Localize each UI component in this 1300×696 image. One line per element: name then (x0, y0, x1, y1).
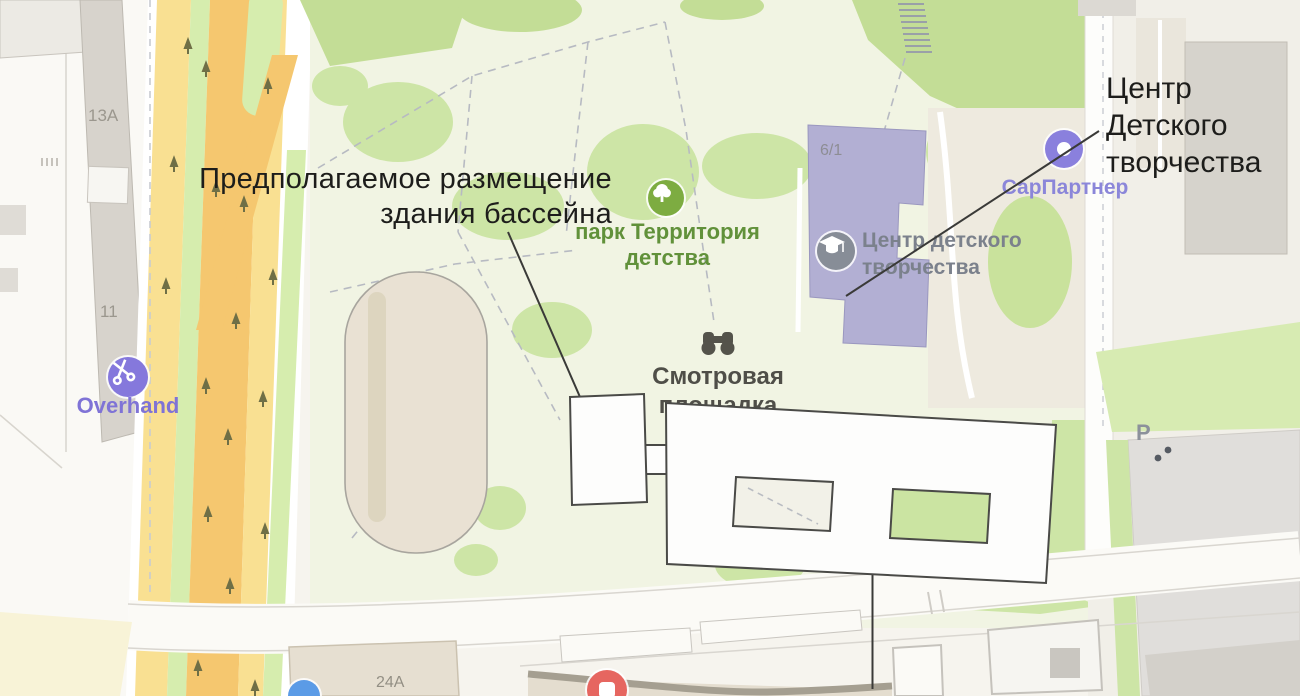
pool-small-block (570, 394, 647, 505)
pool-courtyard-left (733, 477, 833, 531)
pool-annotation-line2: здания бассейна (130, 197, 612, 232)
pool-courtyard-right (890, 489, 990, 543)
cdt-leader-line (846, 131, 1099, 296)
cdt-annotation-line2: Детского (1106, 107, 1261, 144)
proposed-pool-buildings (570, 394, 1056, 583)
cdt-annotation-line1: Центр (1106, 70, 1261, 107)
pool-main-block (666, 403, 1056, 583)
pool-annotation-line1: Предполагаемое размещение (130, 162, 612, 197)
proposal-overlay (0, 0, 1300, 696)
map-canvas[interactable]: парк Территория детства Центр детского т… (0, 0, 1300, 696)
pool-annotation: Предполагаемое размещение здания бассейн… (130, 162, 612, 232)
cdt-annotation: Центр Детского творчества (1106, 70, 1261, 181)
cdt-annotation-line3: творчества (1106, 144, 1261, 181)
